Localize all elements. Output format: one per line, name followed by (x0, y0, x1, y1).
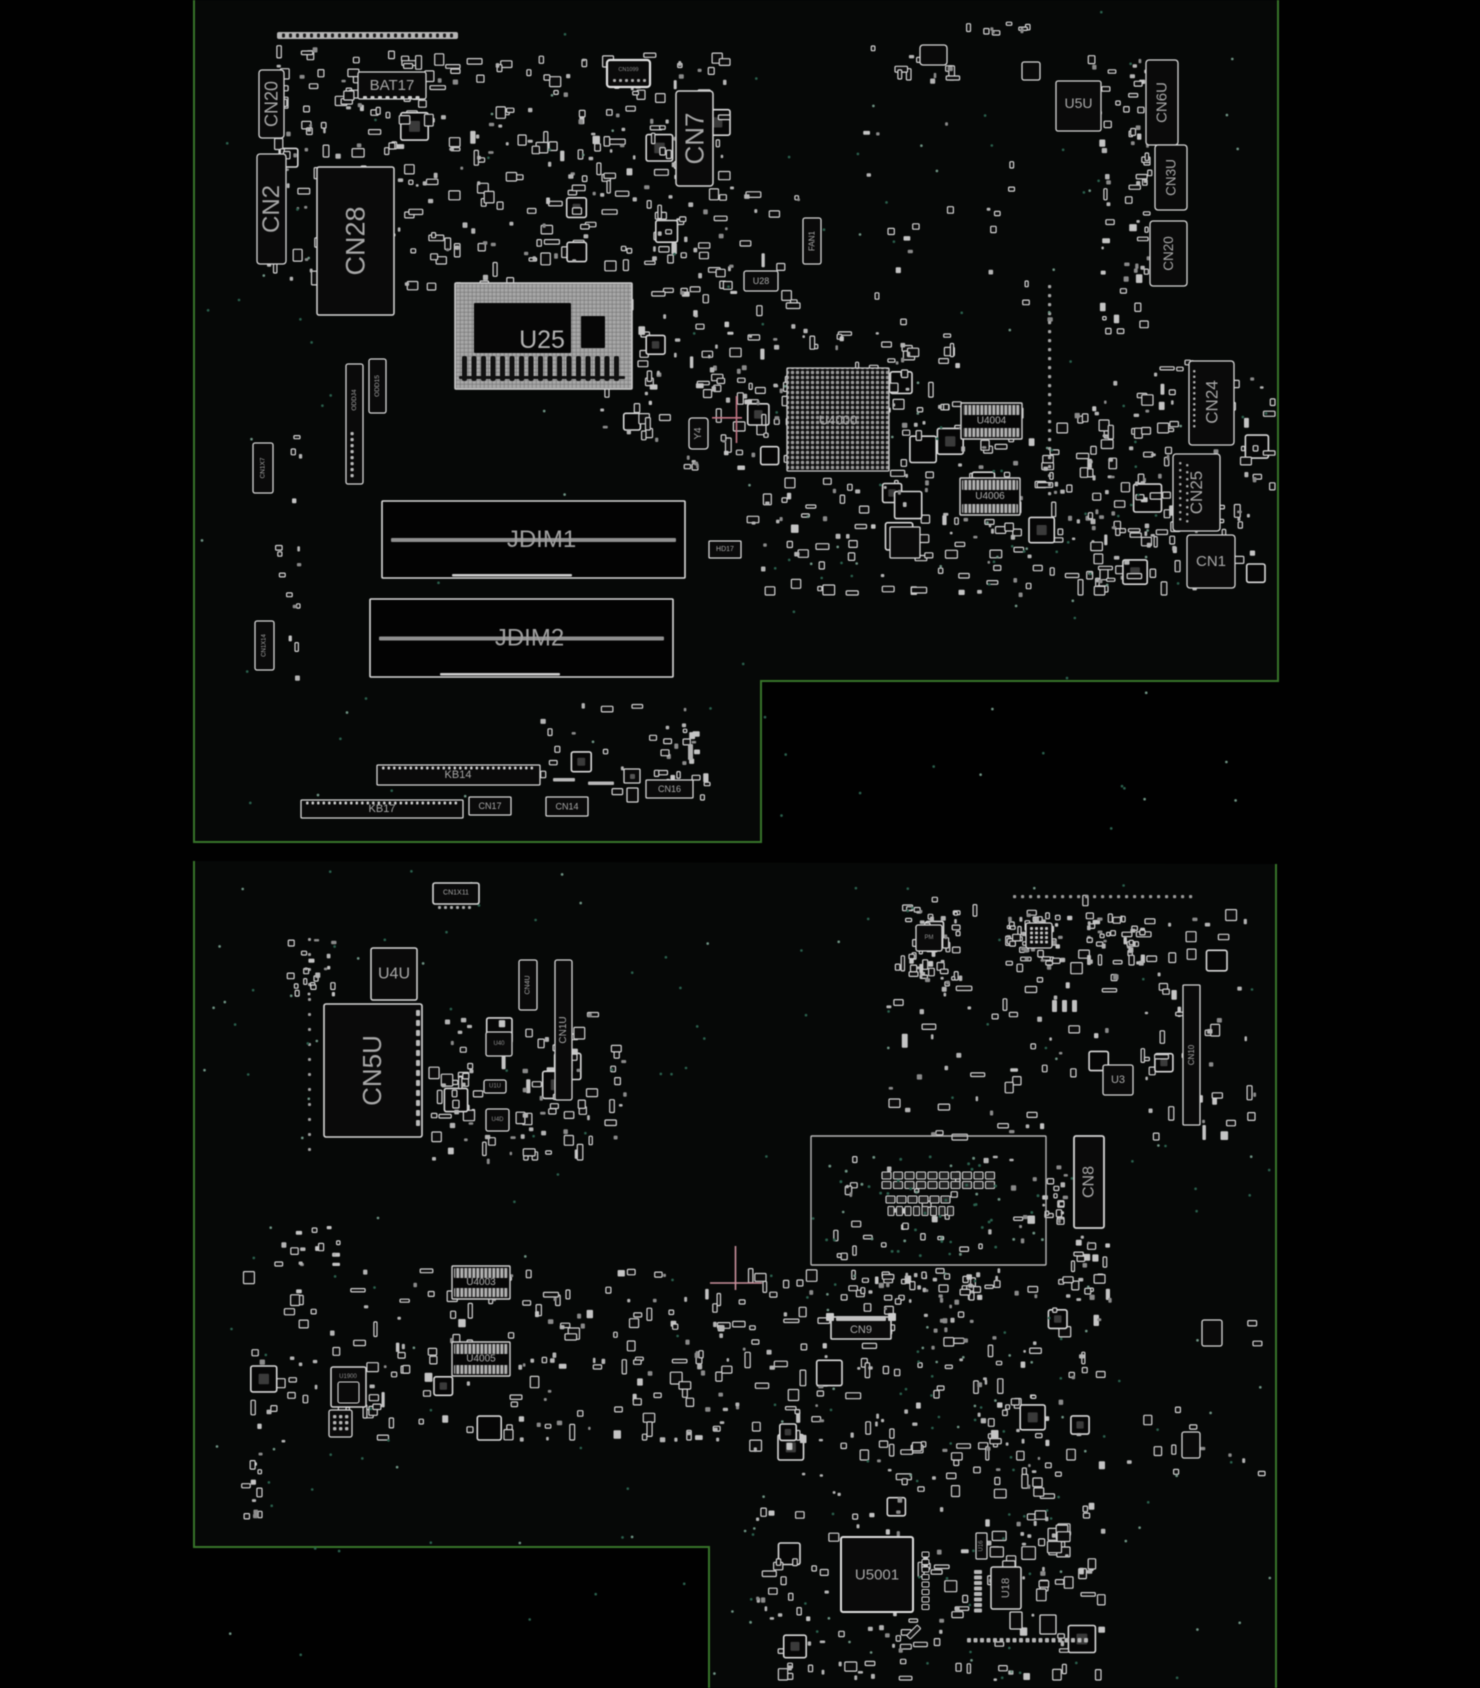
svg-text:CN9: CN9 (850, 1324, 872, 1336)
svg-text:CN8: CN8 (1081, 1166, 1098, 1198)
svg-text:CN1X7: CN1X7 (260, 457, 267, 478)
svg-text:HD17: HD17 (716, 546, 734, 553)
svg-text:U4D: U4D (491, 1117, 504, 1123)
svg-text:CN1099: CN1099 (618, 67, 638, 73)
svg-text:CN20: CN20 (1161, 236, 1176, 271)
svg-text:KB14: KB14 (445, 769, 472, 781)
svg-text:U4005: U4005 (466, 1354, 496, 1365)
svg-text:CN1X11: CN1X11 (443, 890, 469, 897)
svg-text:U5U: U5U (1064, 95, 1092, 111)
svg-text:U28: U28 (753, 276, 770, 286)
svg-text:U1U: U1U (489, 1084, 501, 1090)
svg-text:U4004: U4004 (977, 416, 1007, 427)
svg-text:CN28: CN28 (341, 206, 371, 275)
svg-text:CN1: CN1 (1196, 553, 1226, 570)
svg-text:CN10: CN10 (1187, 1044, 1196, 1065)
svg-text:CN7: CN7 (680, 112, 710, 164)
svg-text:JDIM1: JDIM1 (507, 526, 576, 553)
svg-text:CN5U: CN5U (357, 1035, 387, 1106)
svg-text:ODD15: ODD15 (374, 375, 381, 397)
svg-text:CN4U: CN4U (525, 975, 532, 994)
svg-text:CN20: CN20 (262, 81, 282, 127)
svg-text:CN17: CN17 (478, 801, 501, 811)
svg-text:U4U: U4U (378, 966, 410, 983)
svg-text:CN6U: CN6U (1154, 82, 1171, 123)
svg-text:U16: U16 (979, 1540, 985, 1552)
svg-text:U1900: U1900 (339, 1374, 357, 1380)
svg-text:FAN1: FAN1 (808, 230, 817, 251)
svg-text:U40: U40 (493, 1041, 505, 1047)
svg-text:U3: U3 (1111, 1074, 1125, 1086)
svg-text:CN2: CN2 (258, 185, 285, 233)
svg-text:PM: PM (925, 935, 934, 941)
svg-text:KB17: KB17 (369, 803, 396, 815)
svg-text:JDIM2: JDIM2 (495, 625, 564, 652)
svg-text:U18: U18 (1000, 1578, 1012, 1598)
svg-text:Y4: Y4 (693, 427, 704, 440)
svg-text:CN1U: CN1U (558, 1016, 569, 1043)
svg-text:U4003: U4003 (466, 1277, 496, 1288)
svg-text:CN14: CN14 (555, 802, 578, 812)
svg-text:CN25: CN25 (1187, 471, 1206, 514)
svg-text:CN24: CN24 (1203, 380, 1222, 423)
svg-text:U5001: U5001 (855, 1567, 899, 1584)
svg-text:U4006: U4006 (975, 491, 1005, 502)
svg-text:U25: U25 (519, 326, 565, 354)
svg-text:CN1X14: CN1X14 (262, 634, 268, 657)
svg-text:CN16: CN16 (658, 784, 681, 794)
svg-text:BAT17: BAT17 (370, 77, 415, 94)
svg-text:U4000: U4000 (819, 413, 857, 428)
svg-text:ODDJ4: ODDJ4 (351, 389, 358, 411)
svg-text:CN3U: CN3U (1164, 159, 1179, 196)
